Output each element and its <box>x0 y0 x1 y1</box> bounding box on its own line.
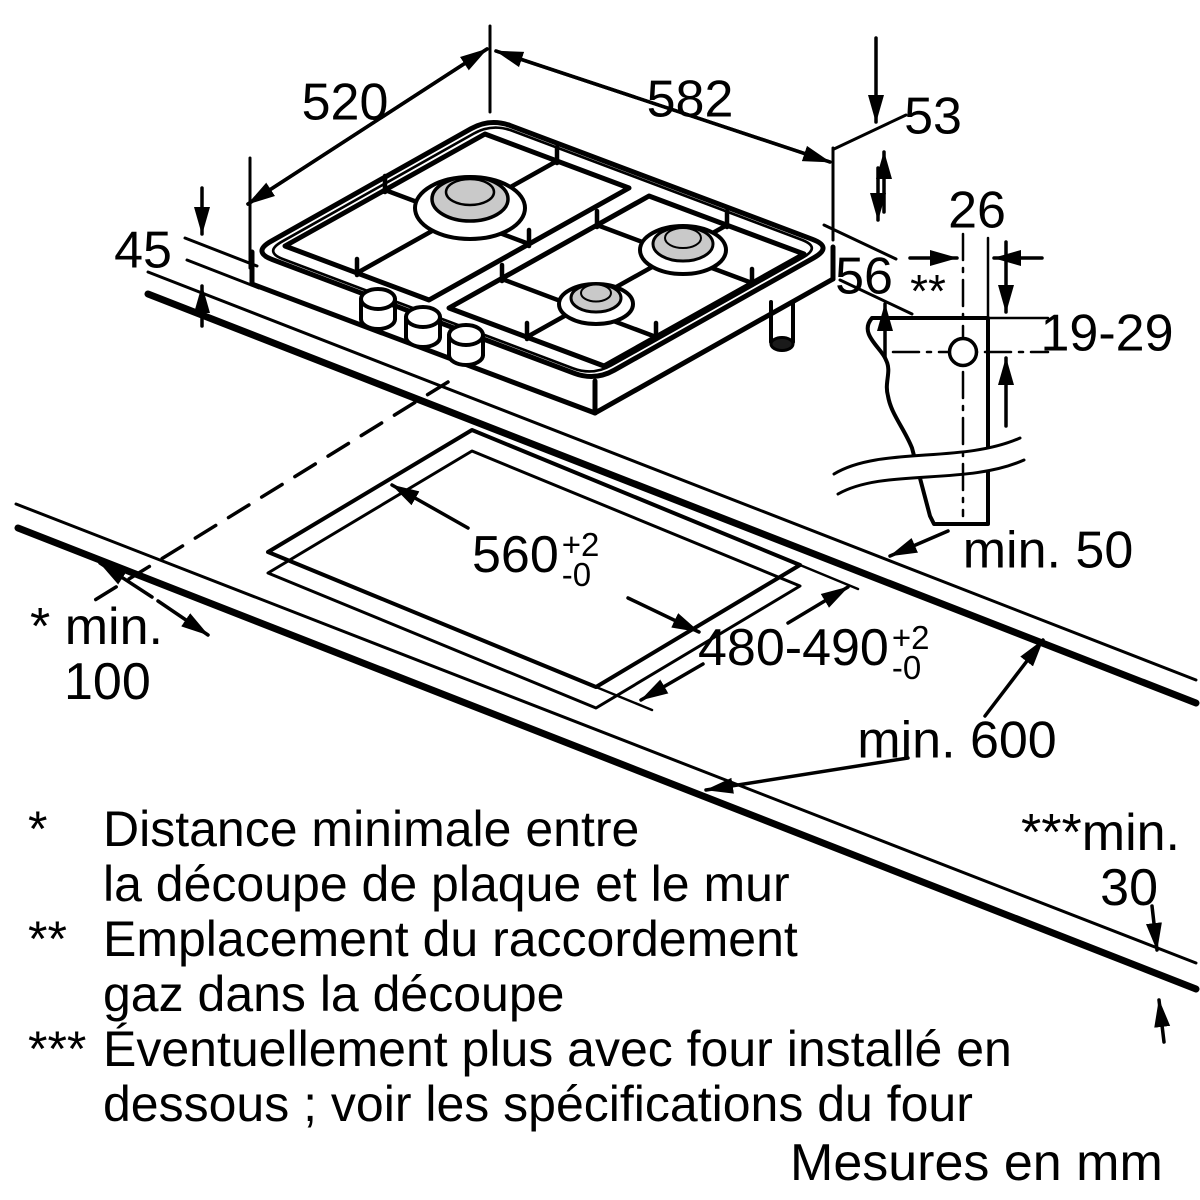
footnote-1-symbol: * <box>28 802 103 912</box>
footnote-3-line2: dessous ; voir les spécifications du fou… <box>103 1077 1012 1132</box>
dim-cutout-width-value: 560 <box>472 528 559 583</box>
footnote-2-line2: gaz dans la découpe <box>103 967 798 1022</box>
footnote-1-line1: Distance minimale entre <box>103 802 790 857</box>
burner-large <box>415 177 525 239</box>
footnote-3: *** Éventuellement plus avec four instal… <box>28 1022 1012 1132</box>
dim-side-clearance-marker: * <box>30 598 50 656</box>
dim-hob-width: 582 <box>647 73 734 128</box>
dim-worktop-depth: min. 600 <box>857 714 1056 769</box>
dim-worktop-thickness-value: 30 <box>990 861 1158 916</box>
dim-worktop-thickness-text: min. <box>1082 804 1180 862</box>
footnote-3-symbol: *** <box>28 1022 103 1132</box>
units-note: Mesures en mm <box>790 1136 1150 1191</box>
footnote-1-line2: la découpe de plaque et le mur <box>103 857 790 912</box>
dim-rear-clearance: min. 50 <box>963 524 1134 579</box>
dim-cutout-depth-value: 480-490 <box>698 621 889 676</box>
burner-medium <box>640 226 726 274</box>
dim-front-height: 45 <box>114 224 172 279</box>
dim-cutout-depth: 480-490 +2 -0 <box>698 621 929 681</box>
dim-gas-drop: 56 <box>835 250 893 305</box>
dim-gas-offset-side: 26 <box>948 184 1006 239</box>
projection-dashed-line <box>95 382 448 600</box>
dim-side-clearance: * min. 100 <box>30 600 163 709</box>
dim-cutout-width: 560 +2 -0 <box>472 528 599 588</box>
dim-cutout-width-tol-minus: -0 <box>562 560 600 590</box>
gas-inlet-hole <box>950 339 977 366</box>
dim-edge-height: 53 <box>904 90 962 145</box>
dim-worktop-thickness-marker: *** <box>1021 804 1082 862</box>
dim-hob-depth: 520 <box>302 76 389 131</box>
dim-worktop-thickness: ***min. 30 <box>990 806 1180 915</box>
dim-cutout-depth-tol-minus: -0 <box>892 653 930 683</box>
dim-side-clearance-text: min. <box>65 598 163 656</box>
footnote-2: ** Emplacement du raccordement gaz dans … <box>28 912 798 1022</box>
hob-top-outline <box>262 122 823 376</box>
burner-small <box>559 284 633 324</box>
installation-diagram: 520 582 53 45 26 56 ** 19-29 min. 50 min… <box>0 0 1200 1200</box>
dim-side-clearance-value: 100 <box>30 655 163 710</box>
footnote-2-symbol: ** <box>28 912 103 1022</box>
dim-gas-drop-marker: ** <box>910 267 946 315</box>
dim-gas-hole-range: 19-29 <box>1041 307 1174 362</box>
footnote-2-line1: Emplacement du raccordement <box>103 912 798 967</box>
footnote-3-line1: Éventuellement plus avec four installé e… <box>103 1022 1012 1077</box>
footnote-1: * Distance minimale entre la découpe de … <box>28 802 790 912</box>
